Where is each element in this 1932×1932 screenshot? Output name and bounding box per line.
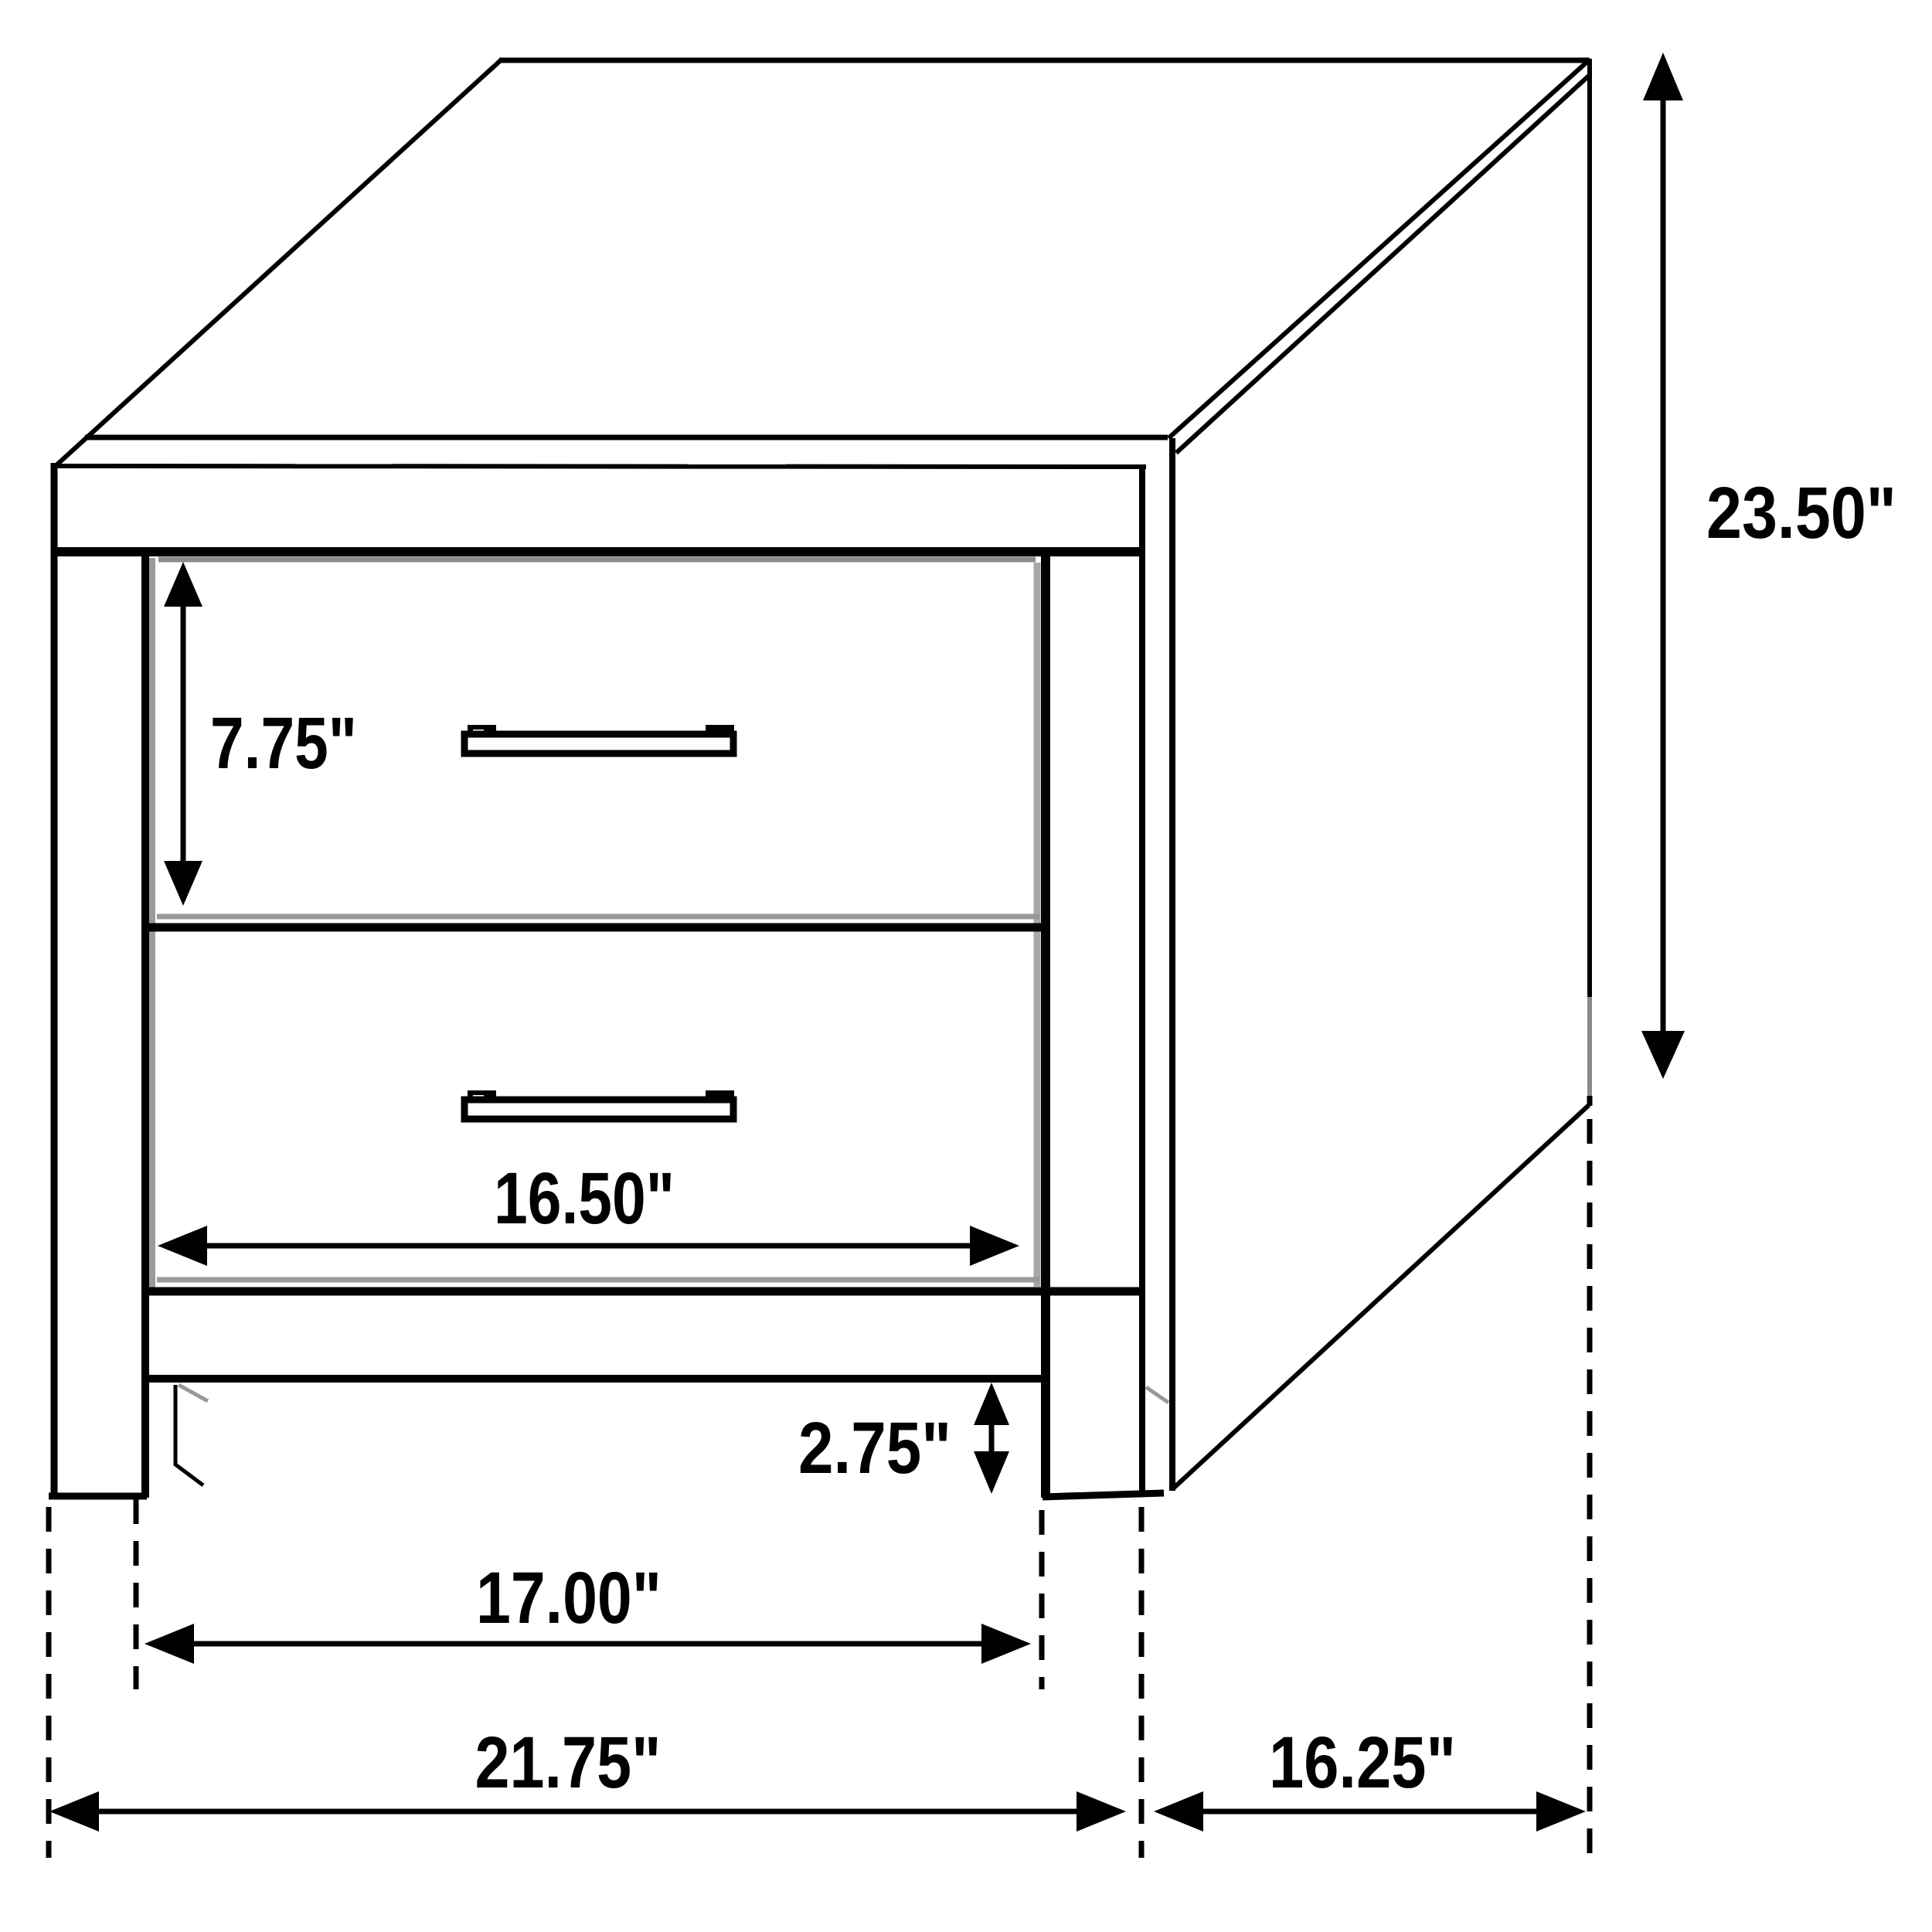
- svg-text:16.50": 16.50": [494, 1158, 675, 1240]
- svg-text:2.75": 2.75": [798, 1407, 951, 1489]
- svg-text:17.00": 17.00": [476, 1557, 662, 1639]
- svg-text:21.75": 21.75": [475, 1722, 662, 1804]
- svg-text:23.50": 23.50": [1706, 472, 1896, 554]
- svg-text:7.75": 7.75": [210, 702, 357, 784]
- svg-text:16.25": 16.25": [1269, 1722, 1456, 1804]
